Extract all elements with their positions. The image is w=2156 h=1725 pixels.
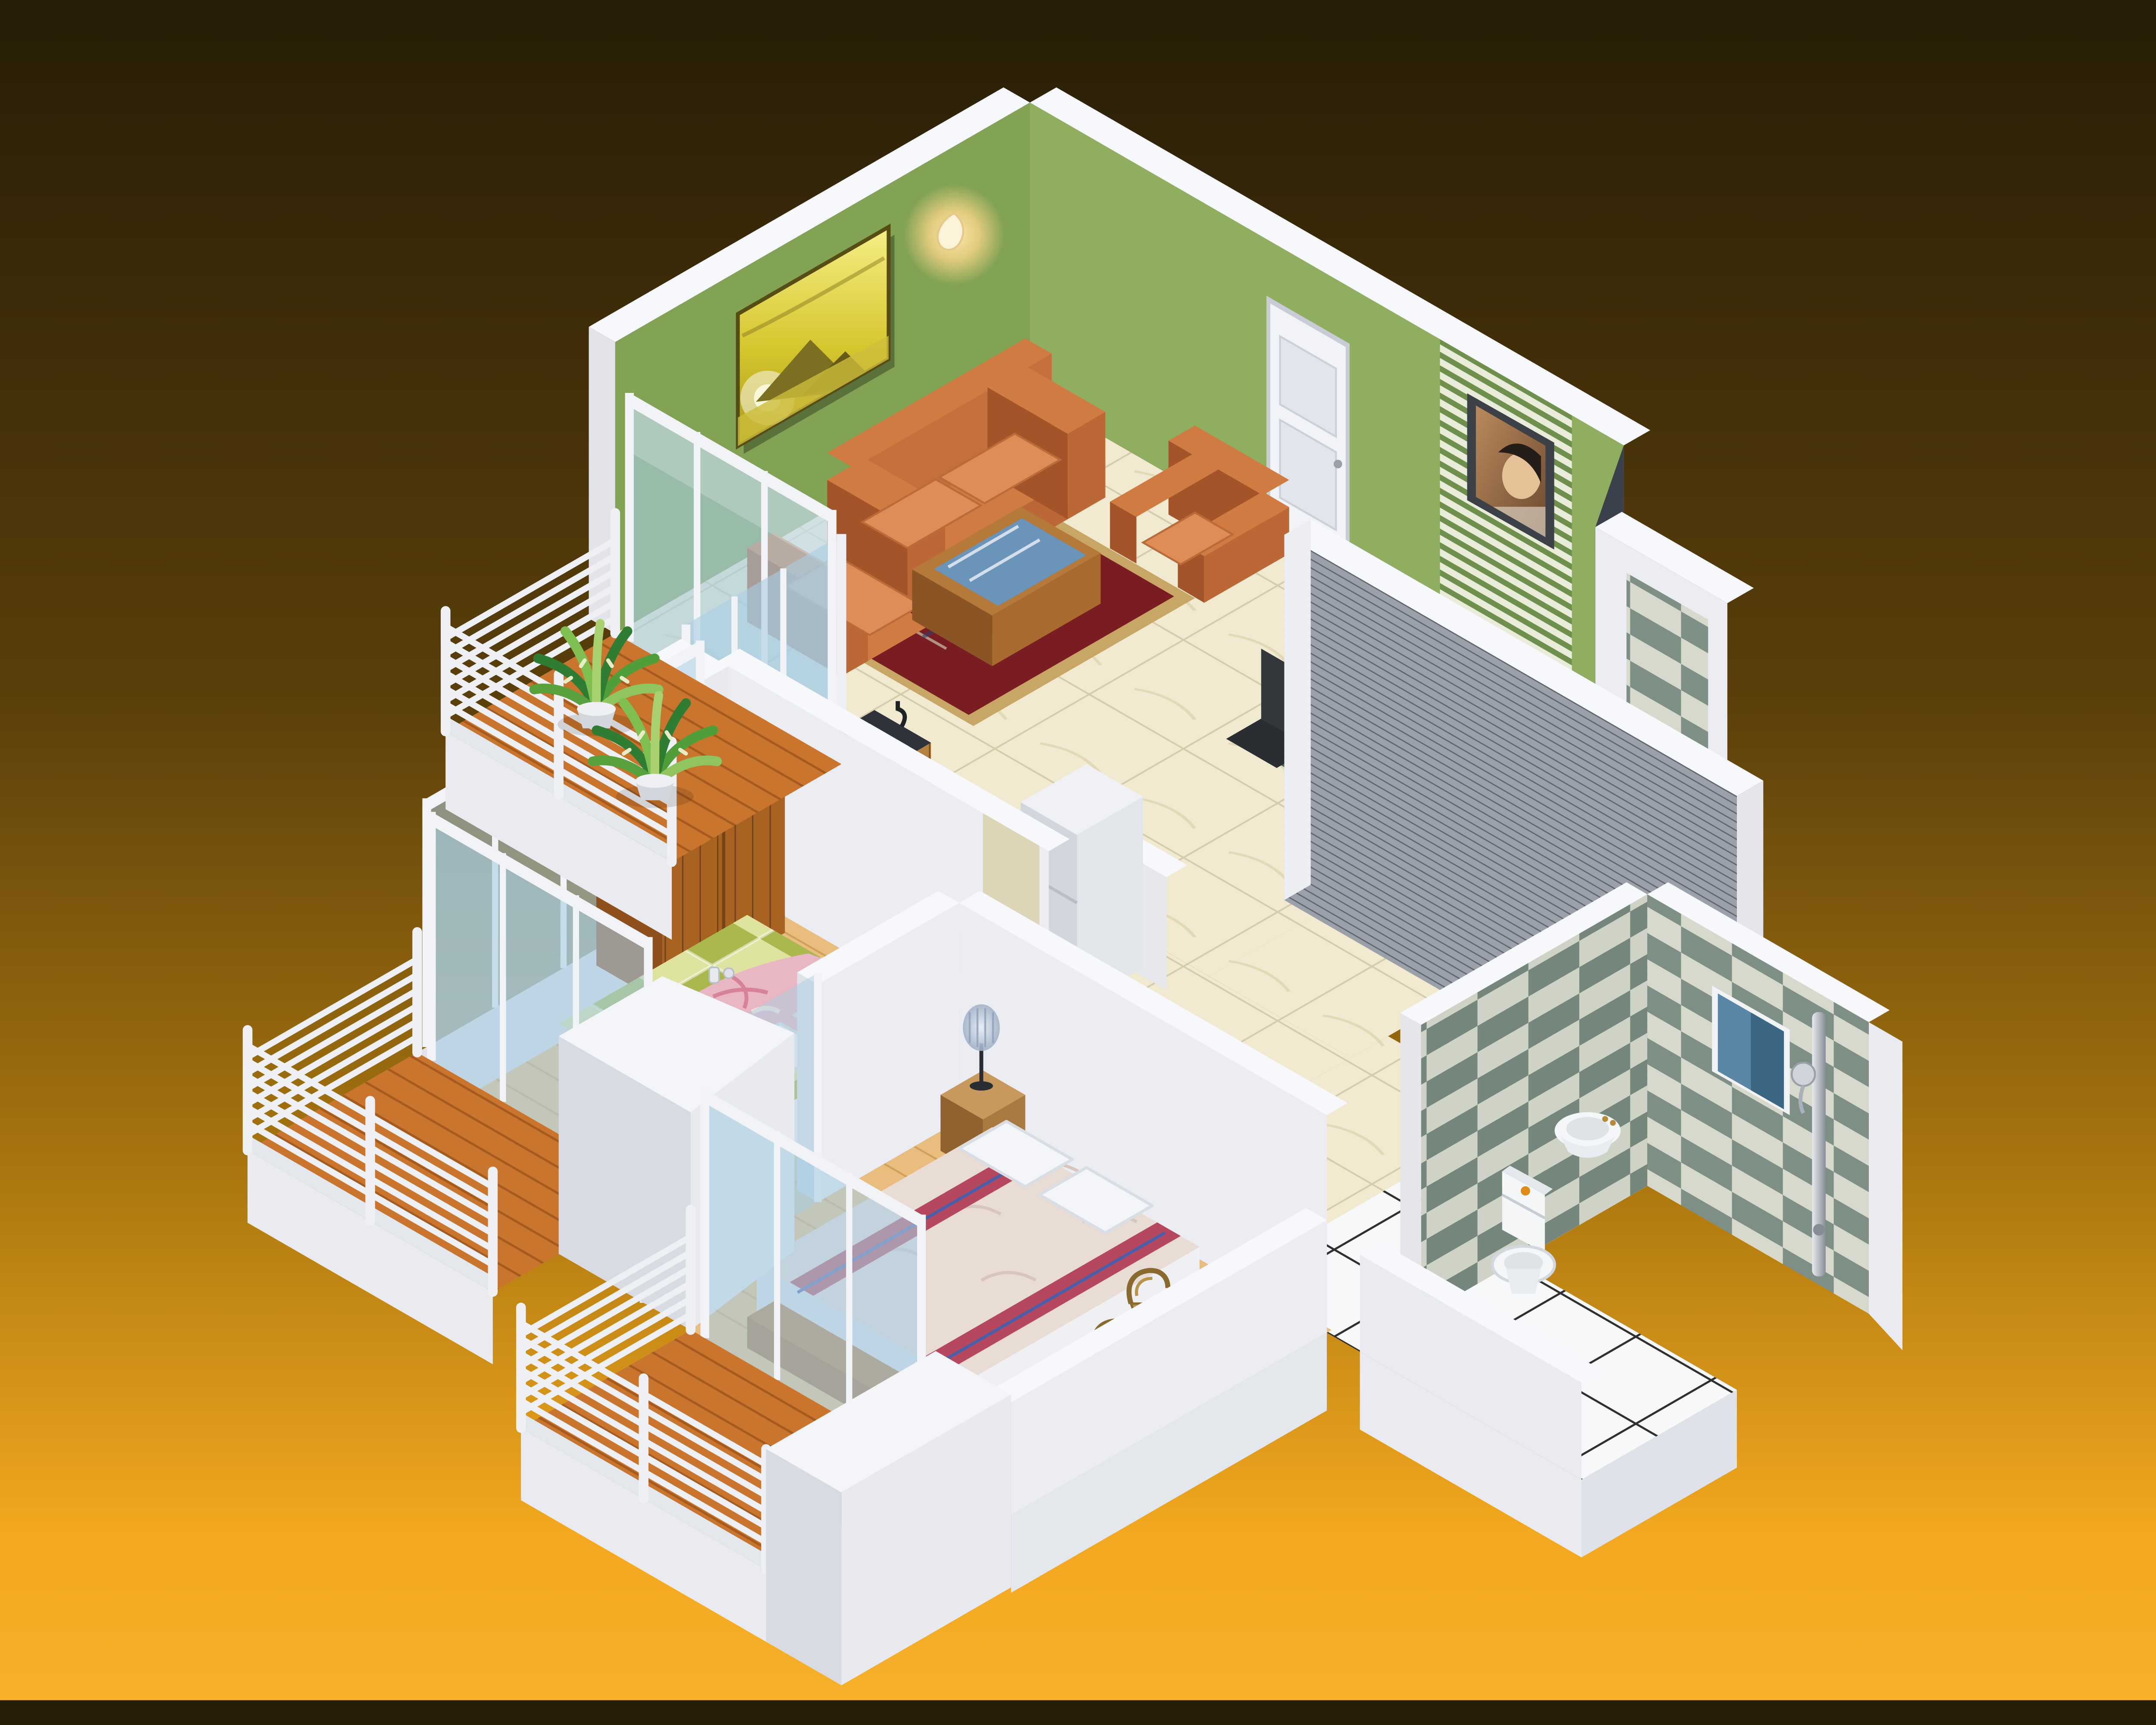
door-knob [1334, 460, 1342, 468]
exterior-wall-right [1869, 1022, 1902, 1350]
flush-button [1521, 1186, 1530, 1196]
floor-plan-render [0, 0, 2156, 1725]
render-stage [0, 0, 2156, 1725]
